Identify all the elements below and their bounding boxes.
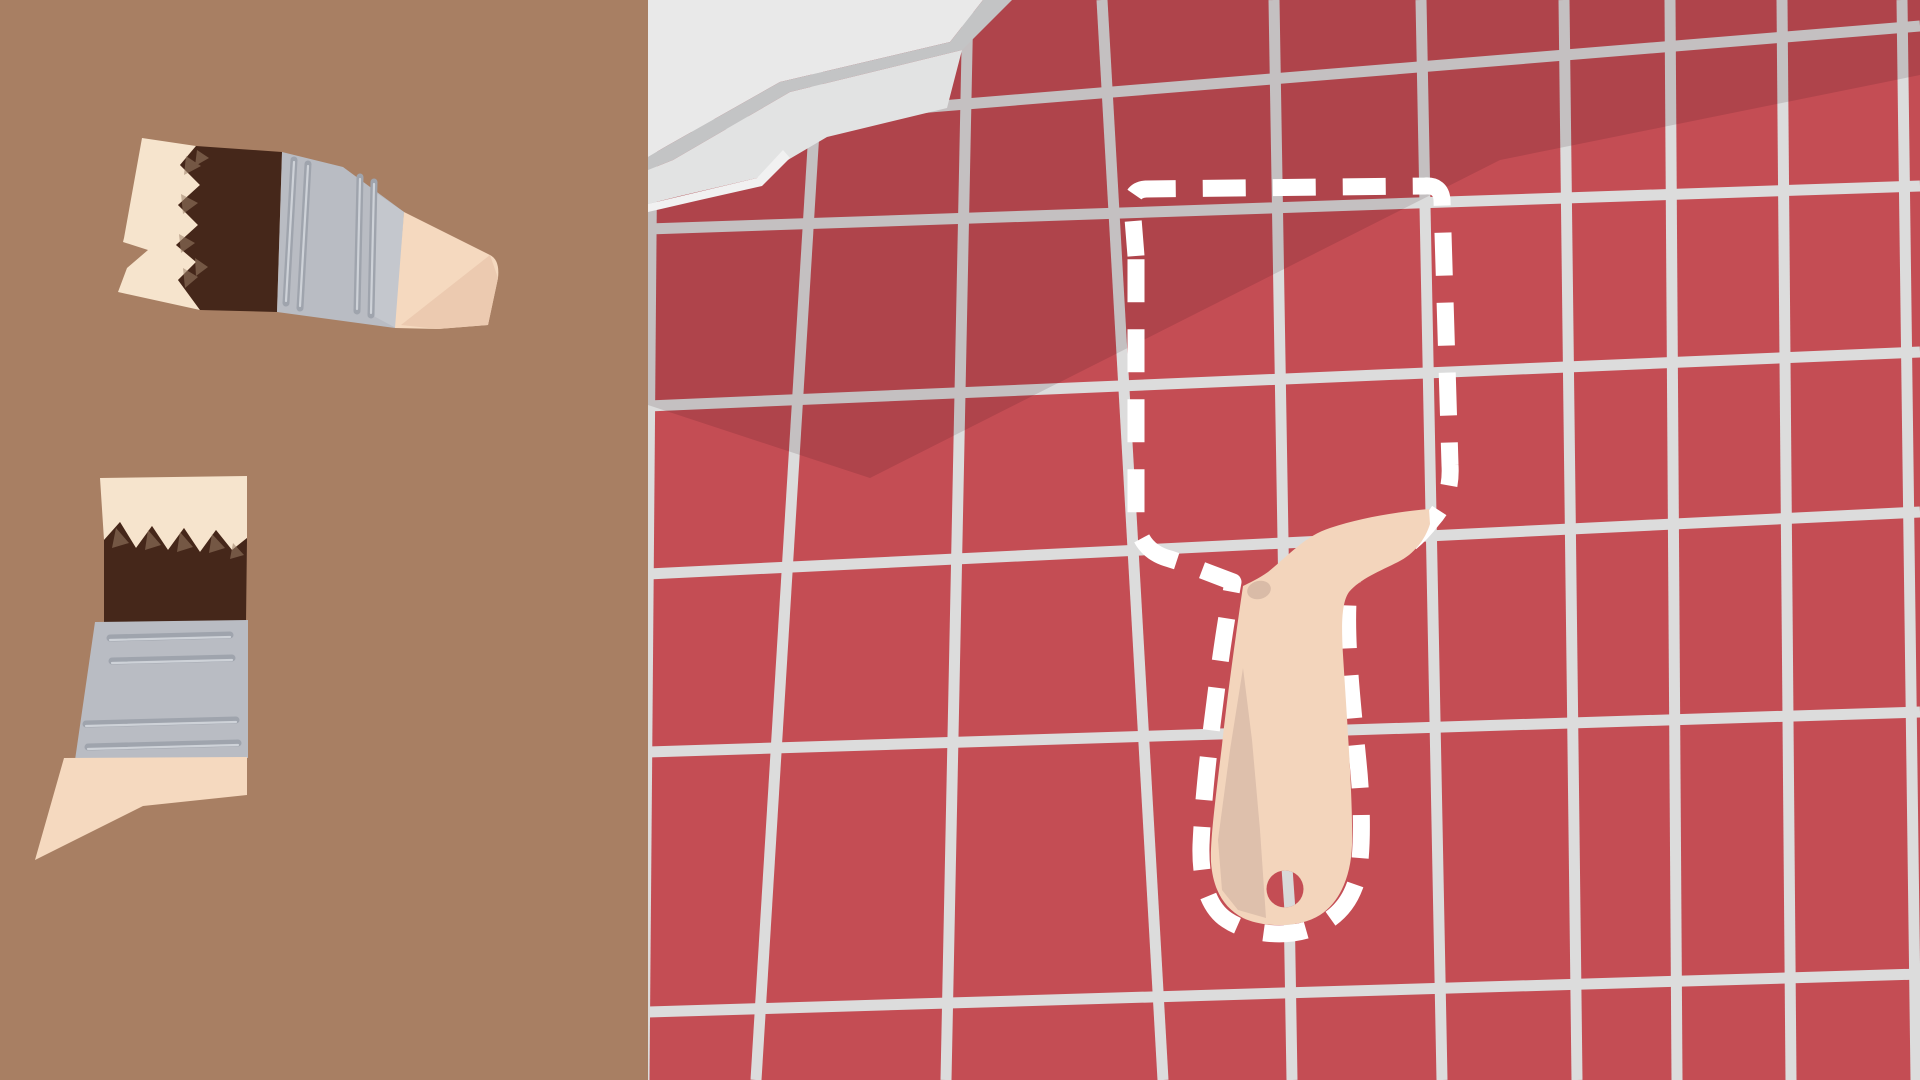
tray-background <box>0 0 648 1080</box>
hole-grout-line <box>1287 868 1290 911</box>
grout-vertical <box>1670 0 1677 1080</box>
pieces-tray <box>0 0 648 1080</box>
puzzle-scene <box>0 0 1920 1080</box>
tiled-wall <box>644 0 1920 1080</box>
piece2-ferrule <box>75 620 248 760</box>
